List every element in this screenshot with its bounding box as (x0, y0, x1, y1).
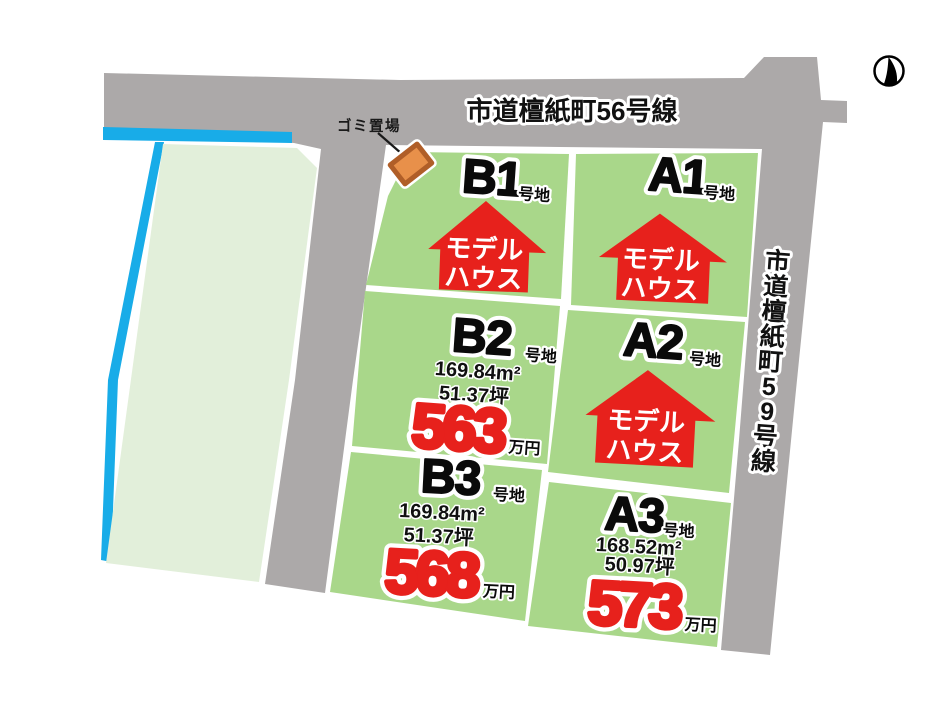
site-map: モデル ハウス モデル ハウス モデル ハウス B1 B1 号地 A1 A1 号… (0, 0, 945, 704)
road-top-label: 市道檀紙町56号線 (467, 96, 678, 126)
lot-price-unit: 万円 (481, 582, 515, 602)
lot-price: 568 (383, 537, 480, 611)
lot-suffix: 号地 (703, 183, 736, 204)
site-plan-page: モデル ハウス モデル ハウス モデル ハウス B1 B1 号地 A1 A1 号… (0, 0, 945, 704)
north-compass-icon (875, 57, 904, 86)
lot-suffix: 号地 (517, 184, 550, 205)
lot-name: B3 (420, 450, 482, 506)
model-house-label-line1: モデル (607, 404, 686, 438)
lot-name: B1 (461, 150, 524, 207)
lot-price-unit: 万円 (507, 438, 541, 458)
model-house-label-line1: モデル (621, 243, 700, 276)
model-house-label-line1: モデル (445, 233, 524, 266)
road-right-char: 線 (750, 446, 777, 477)
lot-area-m2: 169.84m² (399, 500, 486, 526)
lot-name: B2 (451, 309, 514, 366)
model-house-label-line2: ハウス (620, 272, 699, 305)
lot-suffix: 号地 (689, 349, 722, 370)
model-house-label-line2: ハウス (605, 434, 684, 468)
lot-suffix: 号地 (524, 345, 557, 366)
lot-name: A2 (622, 313, 685, 370)
lot-name: A1 (647, 148, 710, 205)
lot-price: 573 (586, 569, 683, 643)
model-house-label-line2: ハウス (444, 262, 523, 295)
lot-suffix: 号地 (492, 485, 525, 506)
garbage-site-label: ゴミ置場 (337, 117, 401, 135)
lot-price-unit: 万円 (683, 616, 717, 636)
